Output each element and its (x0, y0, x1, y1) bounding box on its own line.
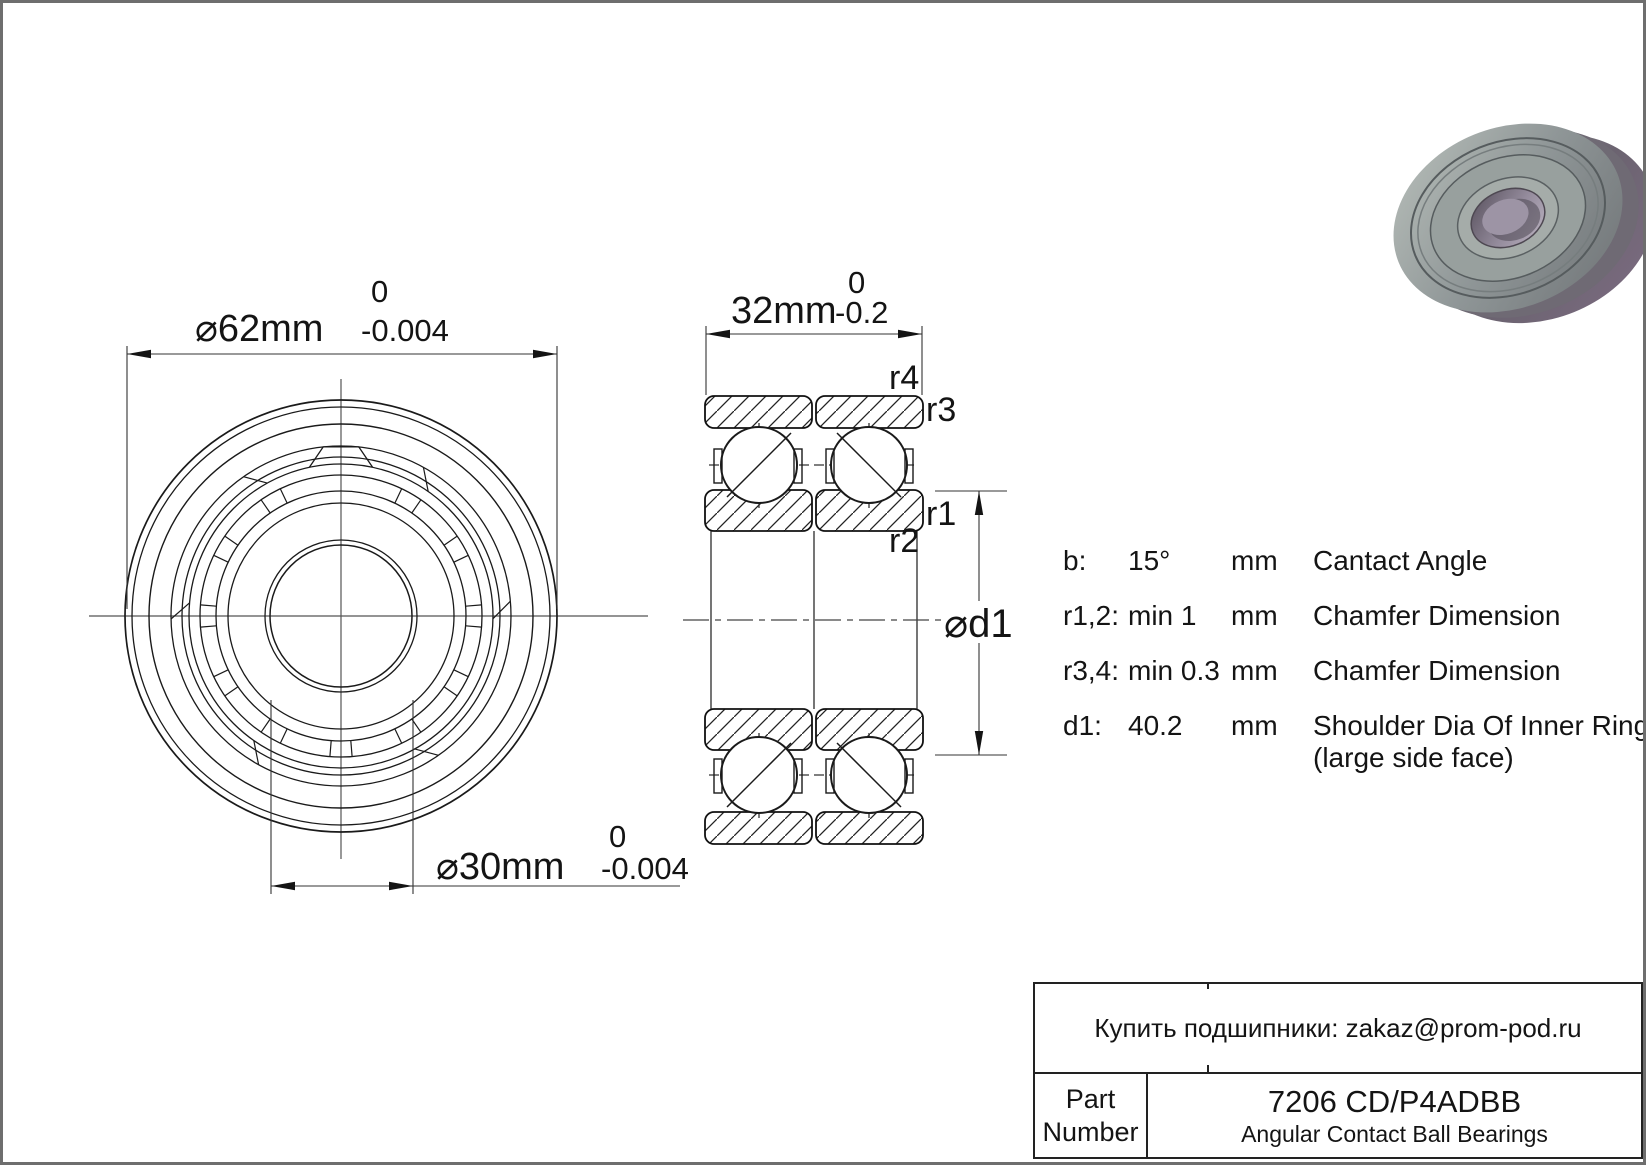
part-number-label-cell: Part Number (1035, 1074, 1148, 1157)
spec-value: min 1 (1128, 600, 1196, 632)
spec-desc-line2: (large side face) (1313, 742, 1514, 774)
bearing-3d-image (1365, 81, 1646, 366)
bearing-type-text: Angular Contact Ball Bearings (1241, 1120, 1548, 1148)
title-block: Купить подшипники: zakaz@prom-pod.ru Par… (1033, 982, 1643, 1159)
supplier-contact-cell: Купить подшипники: zakaz@prom-pod.ru (1035, 984, 1641, 1074)
label-r3: r3 (926, 391, 956, 429)
spec-desc: Chamfer Dimension (1313, 600, 1560, 632)
dim-outer-tol-lower: -0.004 (361, 313, 449, 348)
spec-unit: mm (1231, 710, 1278, 742)
dim-bore-tol-lower: -0.004 (601, 851, 689, 886)
spec-value: 40.2 (1128, 710, 1183, 742)
dim-shoulder-label: ⌀d1 (944, 602, 1013, 646)
front-view-drawing (89, 379, 648, 859)
dim-bore-text: ⌀30mm (436, 846, 564, 888)
part-number-value: 7206 CD/P4ADBB (1268, 1084, 1521, 1120)
part-label-line2: Number (1042, 1116, 1138, 1149)
label-r2: r2 (889, 522, 919, 560)
cross-section-drawing (683, 396, 941, 844)
spec-unit: mm (1231, 600, 1278, 632)
drawing-page: ⌀62mm 0 -0.004 ⌀30mm 0 -0.004 (0, 0, 1646, 1165)
dim-bore-tol-upper: 0 (609, 819, 626, 854)
part-number-cell: 7206 CD/P4ADBB Angular Contact Ball Bear… (1148, 1074, 1641, 1157)
part-label-line1: Part (1066, 1083, 1116, 1116)
spec-label: d1: (1063, 710, 1102, 742)
spec-unit: mm (1231, 545, 1278, 577)
spec-label: r3,4: (1063, 655, 1119, 687)
spec-desc: Chamfer Dimension (1313, 655, 1560, 687)
dim-outer-text: ⌀62mm (195, 308, 323, 350)
label-r4: r4 (889, 359, 919, 397)
label-r1: r1 (926, 495, 956, 533)
spec-value: min 0.3 (1128, 655, 1220, 687)
dim-width-text: 32mm (731, 290, 837, 332)
spec-value: 15° (1128, 545, 1170, 577)
spec-desc: Shoulder Dia Of Inner Ring (1313, 710, 1646, 742)
block-tick-top (1207, 982, 1209, 989)
spec-desc: Cantact Angle (1313, 545, 1487, 577)
spec-unit: mm (1231, 655, 1278, 687)
spec-label: b: (1063, 545, 1086, 577)
spec-label: r1,2: (1063, 600, 1119, 632)
dim-outer-tol-upper: 0 (371, 274, 388, 309)
supplier-contact-text: Купить подшипники: zakaz@prom-pod.ru (1094, 1013, 1581, 1044)
block-tick-middle (1207, 1065, 1209, 1072)
dim-width-tol-lower: -0.2 (835, 295, 888, 330)
